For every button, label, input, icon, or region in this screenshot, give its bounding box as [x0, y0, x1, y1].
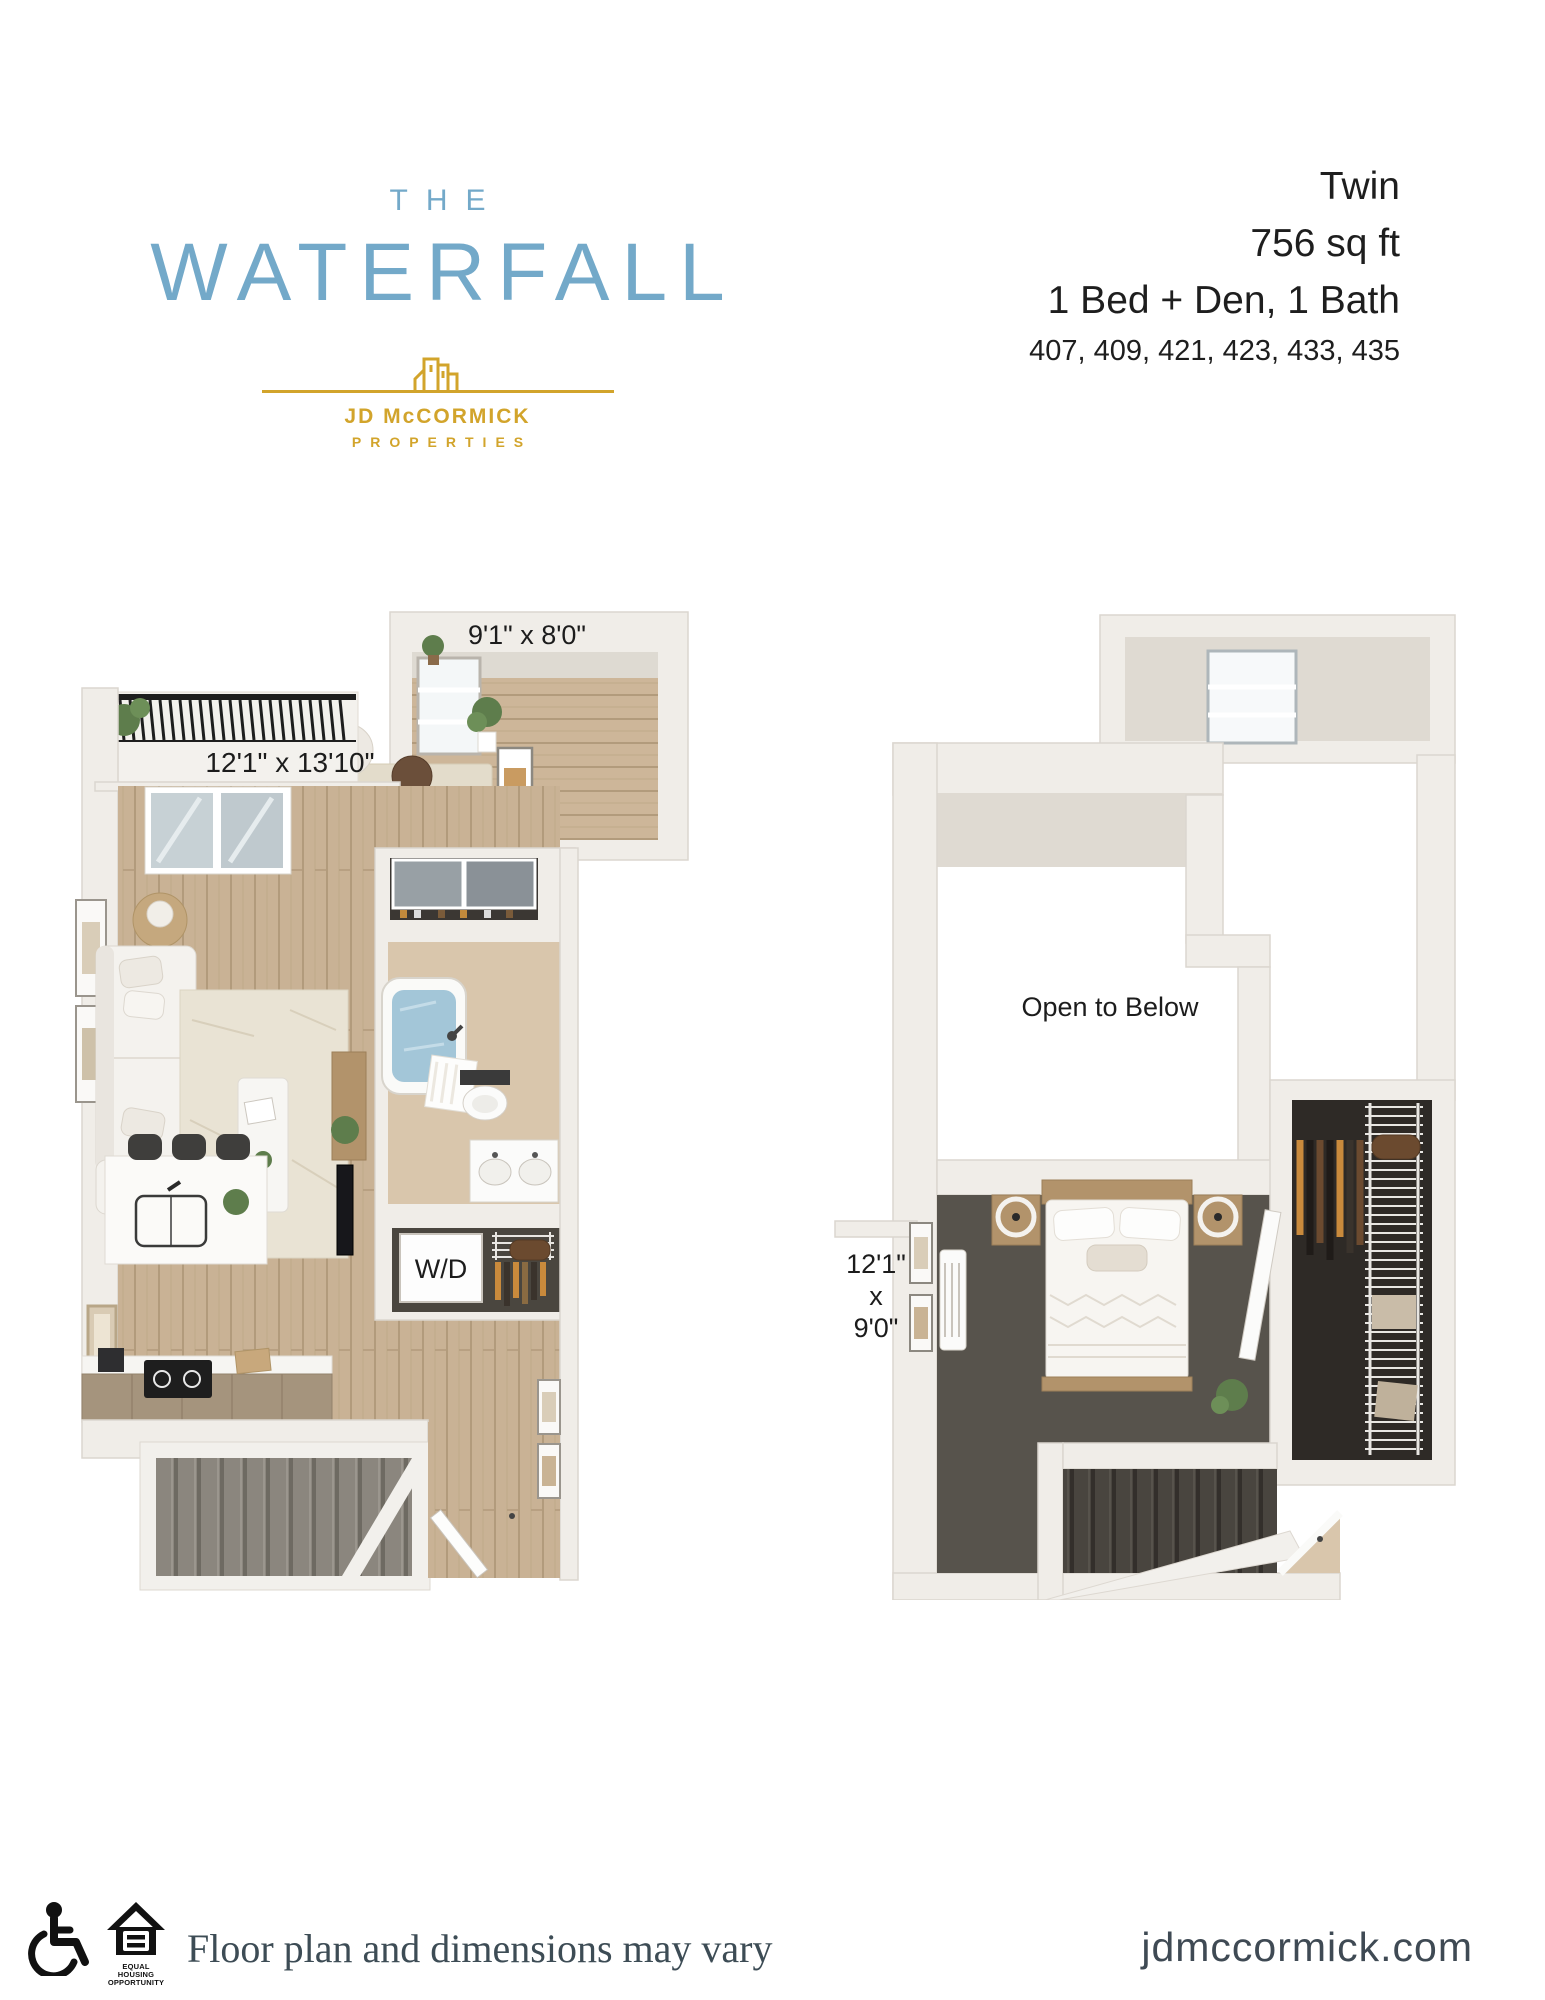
stool — [216, 1134, 250, 1160]
island-plant — [223, 1189, 249, 1215]
washer-dryer-label: W/D — [415, 1254, 467, 1284]
bedroom-dim-line3: 9'0" — [854, 1313, 899, 1343]
left-outer-wall — [893, 743, 937, 1600]
brand-company: JD McCORMICK — [130, 405, 745, 429]
brand-the: THE — [130, 186, 745, 216]
bed — [1042, 1180, 1192, 1391]
closet-storage-bag — [1374, 1381, 1418, 1421]
brand-divider — [262, 390, 614, 393]
coffee-maker — [98, 1348, 124, 1372]
building-logo-icon — [405, 352, 471, 392]
equal-housing-opportunity-icon: EQUAL HOUSING OPPORTUNITY — [104, 1900, 168, 1987]
brand-name: WATERFALL — [130, 232, 745, 314]
sliding-glass-doors — [145, 787, 291, 874]
unit-layout: 1 Bed + Den, 1 Bath — [1029, 272, 1400, 329]
side-table-lamp — [133, 893, 187, 947]
brand-logo: THE WATERFALL JD McCORMICK PROPERTIES — [130, 186, 745, 450]
bedroom-dim-line2: x — [869, 1281, 883, 1311]
landing-carpet — [937, 1443, 1038, 1573]
open-to-below-label: Open to Below — [1021, 992, 1199, 1022]
upper-landing-room — [1100, 615, 1455, 763]
hall-closet — [390, 858, 538, 920]
closet-storage-bag — [1372, 1295, 1416, 1329]
unit-info: Twin 756 sq ft 1 Bed + Den, 1 Bath 407, … — [1029, 158, 1400, 371]
footer-disclaimer: Floor plan and dimensions may vary — [187, 1925, 772, 1972]
bathroom — [382, 942, 560, 1204]
toilet — [460, 1070, 510, 1120]
duffel-bag — [510, 1240, 550, 1260]
living-dimensions-label: 12'1" x 13'10" — [205, 747, 374, 778]
floor-plan-1: 9'1" x 8'0" — [40, 600, 700, 1600]
nightstand-right — [1194, 1195, 1242, 1245]
skylight-window — [418, 658, 480, 754]
stool — [128, 1134, 162, 1160]
skylight-window — [1208, 651, 1296, 743]
wheelchair-accessible-icon — [26, 1900, 98, 1976]
unit-area: 756 sq ft — [1029, 215, 1400, 272]
floor-plan-2: Open to Below 12'1" x 9'0" — [780, 595, 1460, 1600]
kitchen-island — [105, 1134, 267, 1264]
footer-website: jdmccormick.com — [1141, 1924, 1473, 1971]
vanity-double-sink — [470, 1140, 558, 1202]
closet-duffel — [1372, 1135, 1420, 1159]
kitchen-counter — [82, 1348, 332, 1422]
bedroom-dim-line1: 12'1" — [846, 1249, 906, 1279]
den-dimensions-label: 9'1" x 8'0" — [468, 620, 586, 650]
eho-text-line2: OPPORTUNITY — [104, 1979, 168, 1987]
nightstand-left — [992, 1195, 1040, 1245]
unit-numbers: 407, 409, 421, 423, 433, 435 — [1029, 331, 1400, 371]
closet-clothes — [1300, 1140, 1360, 1260]
stairs-down — [140, 1442, 430, 1590]
cutting-board — [235, 1348, 271, 1373]
unit-name: Twin — [1029, 158, 1400, 215]
laundry-closet: W/D — [392, 1228, 560, 1312]
eho-text-line1: EQUAL HOUSING — [104, 1963, 168, 1979]
ac-unit — [940, 1250, 966, 1350]
brand-company-sub: PROPERTIES — [130, 434, 745, 450]
stool — [172, 1134, 206, 1160]
open-to-below: Open to Below — [893, 743, 1270, 1170]
right-arm-wall — [1417, 755, 1455, 1100]
balcony: 12'1" x 13'10" — [95, 692, 375, 788]
walk-in-closet — [1270, 1080, 1455, 1485]
right-outer-wall — [560, 848, 578, 1580]
